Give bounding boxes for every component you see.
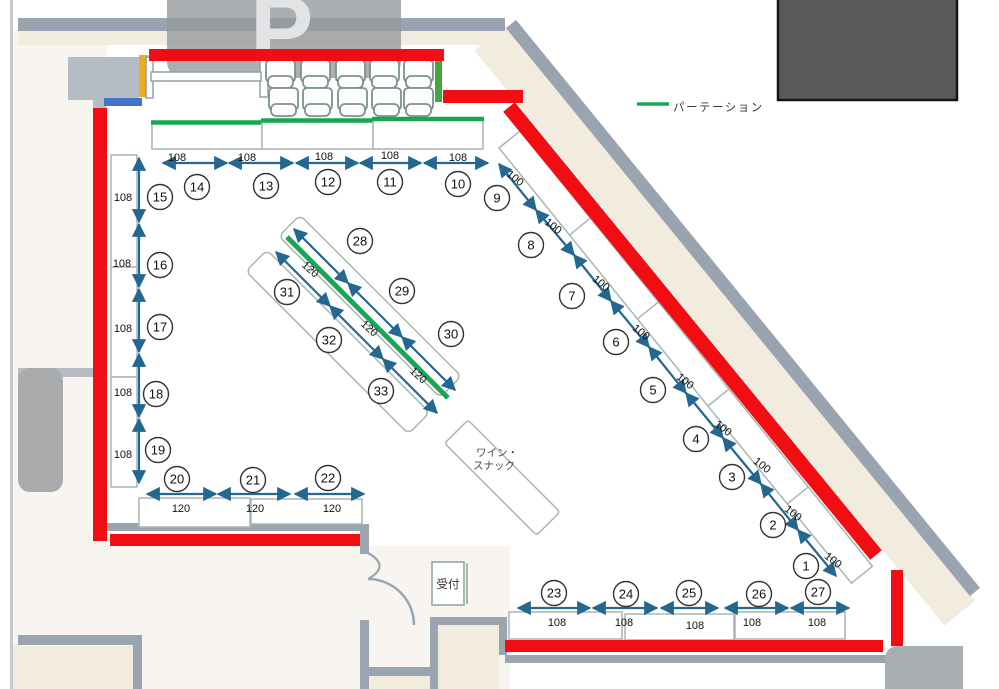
table-top	[151, 72, 261, 81]
bottom-left-room-wall-v	[133, 645, 142, 689]
blue-fixture-bar	[104, 98, 142, 106]
station-number: 31	[280, 285, 294, 300]
bottom-left-room-wall-h	[18, 635, 142, 645]
station-number: 11	[383, 175, 397, 190]
chair-seat	[268, 76, 293, 88]
bottom-left-room-floor	[13, 646, 133, 689]
station-31: 31	[275, 280, 300, 305]
wall-top-right-stub	[443, 90, 523, 103]
station-25: 25	[677, 581, 702, 606]
left-shelf-1	[111, 155, 137, 268]
station-13: 13	[254, 174, 279, 199]
bottom-block-floor	[438, 625, 499, 689]
dimension-label: 108	[168, 152, 186, 164]
station-number: 28	[353, 234, 367, 249]
chair-seat	[305, 104, 330, 116]
station-number: 20	[170, 472, 184, 487]
wall-bottom	[505, 640, 883, 652]
dimension-label: 108	[114, 387, 132, 399]
bottom-center-wall-h	[369, 667, 430, 676]
station-number: 16	[153, 258, 167, 273]
station-29: 29	[390, 279, 415, 304]
dimension-label: 108	[238, 152, 256, 164]
station-number: 13	[259, 179, 273, 194]
station-number: 1	[802, 559, 809, 574]
dimension-label: 108	[686, 620, 704, 632]
top-shelf-3	[373, 120, 483, 149]
chair-seat	[374, 104, 399, 116]
station-12: 12	[316, 170, 341, 195]
chair-seat	[340, 104, 365, 116]
station-23: 23	[542, 581, 567, 606]
station-number: 10	[451, 177, 465, 192]
reception-label: 受付	[437, 578, 460, 591]
station-21: 21	[241, 468, 266, 493]
bottom-left-shelf-2	[251, 499, 362, 524]
top-shelf-2	[262, 121, 373, 149]
station-number: 19	[151, 443, 165, 458]
wine-snack-label-1: ワイン・	[476, 447, 518, 459]
dimension-label: 108	[743, 617, 761, 629]
station-16: 16	[148, 253, 173, 278]
chair-seat	[338, 76, 363, 88]
left-building	[18, 368, 63, 492]
chair	[301, 60, 330, 88]
station-number: 12	[321, 175, 335, 190]
station-number: 4	[692, 432, 699, 447]
dark-panel	[778, 0, 957, 100]
dimension-label: 108	[449, 152, 467, 164]
station-number: 7	[568, 289, 575, 304]
left-shelf-2	[111, 267, 137, 377]
station-8: 8	[519, 233, 544, 258]
dimension-label: 108	[808, 617, 826, 629]
bottom-left-shelf-1	[139, 498, 250, 527]
top-shelf-1	[152, 122, 262, 149]
station-number: 27	[811, 585, 825, 600]
bottom-block-wall-top	[430, 617, 507, 625]
chair	[266, 60, 295, 88]
wall-left	[93, 108, 107, 541]
chair	[269, 88, 298, 116]
station-7: 7	[560, 284, 585, 309]
station-number: 8	[527, 238, 534, 253]
bottom-shelf-2	[625, 614, 734, 640]
station-number: 2	[769, 518, 776, 533]
chair	[338, 88, 367, 116]
station-number: 22	[321, 471, 335, 486]
wine-snack-label-2: スナック	[473, 460, 515, 472]
station-33: 33	[369, 379, 394, 404]
station-number: 24	[619, 587, 633, 602]
chair	[303, 88, 332, 116]
wall-bottom-left	[110, 534, 360, 546]
station-number: 23	[547, 586, 561, 601]
dimension-label: 108	[615, 617, 633, 629]
station-17: 17	[148, 315, 173, 340]
station-2: 2	[761, 513, 786, 538]
dimension-label: 108	[315, 151, 333, 163]
chair-seat	[406, 104, 431, 116]
dimension-label: 120	[246, 503, 264, 515]
dimension-label: 108	[113, 258, 131, 270]
station-18: 18	[144, 382, 169, 407]
wall-top	[149, 49, 444, 61]
chair	[372, 88, 401, 116]
station-number: 32	[322, 333, 336, 348]
dimension-label: 120	[323, 503, 341, 515]
station-22: 22	[316, 466, 341, 491]
station-number: 14	[190, 180, 204, 195]
station-24: 24	[614, 582, 639, 607]
entry-counter-gray	[68, 57, 139, 100]
station-14: 14	[185, 175, 210, 200]
station-number: 33	[374, 384, 388, 399]
station-number: 25	[682, 586, 696, 601]
green-fixture-bar	[435, 60, 442, 102]
station-6: 6	[604, 330, 629, 355]
chair	[404, 88, 433, 116]
station-number: 29	[395, 284, 409, 299]
station-number: 26	[752, 587, 766, 602]
station-15: 15	[148, 185, 173, 210]
station-number: 9	[493, 191, 500, 206]
partition-legend-label: パーテーション	[673, 101, 764, 114]
station-number: 5	[649, 383, 656, 398]
bottom-wall-gray	[505, 655, 886, 663]
wall-right-vertical	[891, 570, 903, 646]
station-20: 20	[165, 467, 190, 492]
station-26: 26	[747, 582, 772, 607]
station-4: 4	[684, 427, 709, 452]
bottom-right-building	[885, 646, 963, 689]
station-number: 3	[728, 470, 735, 485]
station-30: 30	[439, 322, 464, 347]
station-number: 18	[149, 387, 163, 402]
dimension-label: 108	[114, 449, 132, 461]
station-11: 11	[378, 170, 403, 195]
chair-seat	[406, 76, 431, 88]
bottom-block-wall-left	[430, 617, 438, 689]
station-32: 32	[317, 328, 342, 353]
station-3: 3	[720, 465, 745, 490]
dimension-label: 108	[114, 323, 132, 335]
chair	[336, 60, 365, 88]
station-number: 30	[444, 327, 458, 342]
station-19: 19	[146, 438, 171, 463]
station-28: 28	[348, 229, 373, 254]
bottom-center-floor-a	[369, 676, 430, 689]
floor-plan-canvas: P パーテーション	[0, 0, 999, 689]
dimension-label: 108	[548, 617, 566, 629]
chair	[370, 60, 399, 88]
chair-seat	[271, 104, 296, 116]
chairs-group	[266, 60, 433, 116]
chair-seat	[303, 76, 328, 88]
dimension-label: 108	[381, 150, 399, 162]
station-10: 10	[446, 172, 471, 197]
station-number: 15	[153, 190, 167, 205]
station-number: 21	[246, 473, 260, 488]
door-jamb-bottom	[360, 620, 369, 689]
floor-plan-svg: P パーテーション	[0, 0, 999, 689]
chair-seat	[372, 76, 397, 88]
station-1: 1	[794, 554, 819, 579]
station-number: 17	[153, 320, 167, 335]
chair	[404, 60, 433, 88]
dimension-label: 120	[172, 503, 190, 515]
dimension-label: 108	[114, 192, 132, 204]
station-9: 9	[485, 186, 510, 211]
outer-wall-line-left	[10, 0, 13, 689]
station-5: 5	[641, 378, 666, 403]
station-27: 27	[806, 580, 831, 605]
station-number: 6	[612, 335, 619, 350]
